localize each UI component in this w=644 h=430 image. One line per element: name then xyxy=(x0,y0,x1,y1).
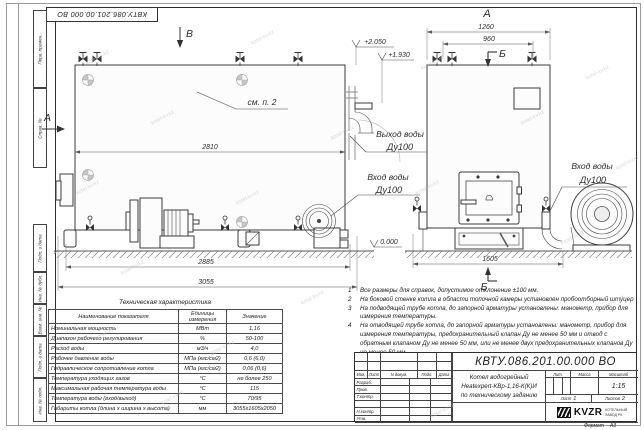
inlet-label-front-line1: Вход воды xyxy=(571,161,613,171)
kvzr-logo-icon xyxy=(557,407,571,418)
title-block: Изм. Лист N докум. Подп. Дата Разраб. Пр… xyxy=(354,352,637,422)
spec-header-row: Наименование показателя Единицы измерени… xyxy=(49,310,283,324)
table-row: Максимальная рабочая температура воды°С1… xyxy=(49,384,283,394)
kvzr-logo-subtext: КОТЕЛЬНЫЙ ЗАВОД РК xyxy=(605,408,627,416)
format-note: Формат А3 xyxy=(560,423,640,429)
view-mark-b: В xyxy=(186,28,193,40)
sheets-total-cell: Листов 2 xyxy=(591,395,638,403)
notes-list: 1 Все размеры для справок, допустимое от… xyxy=(345,287,639,357)
inlet-label-side-line2: Ду100 xyxy=(375,185,402,195)
dim-1260: 1260 xyxy=(478,24,494,31)
table-row: Рабочее давление водыМПа (кгс/см2)0,6 (6… xyxy=(49,354,283,364)
inlet-label-front-line2: Ду100 xyxy=(579,175,606,185)
note-item: 1 Все размеры для справок, допустимое от… xyxy=(345,287,639,296)
fan-front xyxy=(571,183,633,251)
spec-table-title: Техническая характеристика xyxy=(48,299,282,306)
ground-hatch-left xyxy=(54,252,374,259)
elev-2050: +2.050 xyxy=(364,39,386,46)
view-mark-a: А xyxy=(43,112,51,124)
table-row: Габариты котла (длина х ширина х высота)… xyxy=(49,404,283,414)
elev-1930: +1.930 xyxy=(388,52,410,59)
title-block-change-grid: Изм. Лист N докум. Подп. Дата xyxy=(355,353,452,379)
outlet-label-line2: Ду100 xyxy=(386,142,413,152)
table-row: Температура воды (вход/выход)°С70/95 xyxy=(49,394,283,404)
dim-2810: 2810 xyxy=(201,144,218,151)
table-row: Номинальная мощностьМВт1,16 xyxy=(49,324,283,334)
inlet-label-side-line1: Вход воды xyxy=(367,172,409,182)
sheet-cell: Лист 1 xyxy=(545,395,591,403)
kvzr-logo-text: KVZR xyxy=(574,407,602,418)
boiler-side-view: 2810 см. п. 2 В А +2.050 +1.930 0.000 Вы… xyxy=(42,27,434,291)
note-item: 3 На подводящей трубе котла, до запорной… xyxy=(345,305,639,323)
table-row: Расход водым3/ч4,0 xyxy=(49,344,283,354)
ground-hatch-right xyxy=(405,252,632,259)
table-row: Гидравлическое сопротивление котлаМПа (к… xyxy=(49,364,283,374)
company-logo: KVZR КОТЕЛЬНЫЙ ЗАВОД РК xyxy=(545,403,638,423)
scale-value: 1:15 xyxy=(598,378,638,395)
dim-960: 960 xyxy=(483,36,495,43)
title-block-roles-grid: Разраб. Пров. Т.контр. Н.контр. Утв. xyxy=(355,379,452,423)
door-handle xyxy=(461,200,476,204)
doc-number: КВТУ.086.201.00.000 ВО xyxy=(452,353,638,371)
boiler-base-front xyxy=(455,228,523,249)
spec-table: Техническая характеристика Наименование … xyxy=(48,299,282,414)
furnace-door xyxy=(459,172,522,224)
table-row: Температура уходящих газов°Сне более 250 xyxy=(49,374,283,384)
view-mark-a-front: А xyxy=(482,8,490,20)
mass-value xyxy=(570,378,598,395)
scale-header: Масштаб xyxy=(598,371,638,378)
product-name: Котел водогрейный Heatexpert-КВр-1,16-К(… xyxy=(452,371,545,403)
outlet-label-line1: Выход воды xyxy=(376,129,425,139)
boiler-front-view: 1260 960 А Б Б Вход во xyxy=(405,8,633,293)
mass-header: Масса xyxy=(570,371,598,378)
front-panel xyxy=(514,88,540,109)
elev-0000: 0.000 xyxy=(380,239,398,246)
dim-3055: 3055 xyxy=(198,279,214,286)
note-item: 2 На боковой стенке котла в области топо… xyxy=(345,296,639,305)
title-block-empty-cell xyxy=(452,403,545,423)
see-note-label: см. п. 2 xyxy=(248,97,277,107)
section-mark-b-top: Б xyxy=(499,48,506,60)
dim-2885: 2885 xyxy=(197,259,214,266)
lit-header: Лит. xyxy=(545,371,570,378)
table-row: Диапазон рабочего регулирования%50-100 xyxy=(49,334,283,344)
